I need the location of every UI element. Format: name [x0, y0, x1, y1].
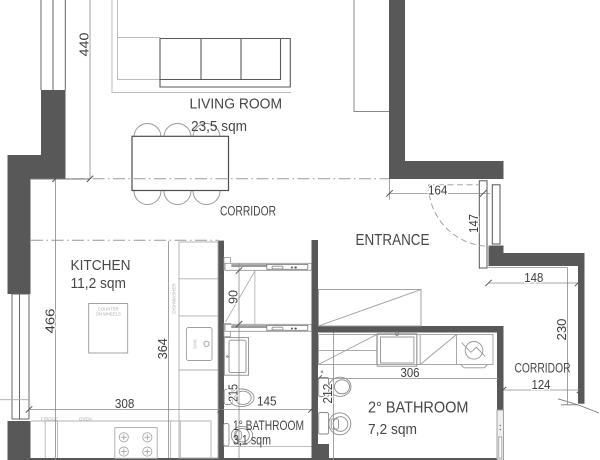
svg-text:145: 145 — [257, 393, 277, 408]
svg-text:ENTRANCE: ENTRANCE — [356, 232, 430, 249]
svg-text:23,5 sqm: 23,5 sqm — [191, 118, 247, 135]
svg-text:3,1 sqm: 3,1 sqm — [233, 433, 271, 448]
svg-text:CORRIDOR: CORRIDOR — [515, 360, 571, 375]
svg-text:148: 148 — [524, 270, 543, 285]
svg-text:KITCHEN: KITCHEN — [71, 258, 131, 274]
svg-text:147: 147 — [466, 214, 481, 233]
svg-text:DISHWASHER: DISHWASHER — [172, 283, 177, 314]
svg-text:2° BATHROOM: 2° BATHROOM — [368, 399, 469, 416]
svg-text:212: 212 — [320, 384, 335, 404]
svg-text:230: 230 — [554, 319, 569, 341]
svg-text:308: 308 — [115, 396, 135, 411]
svg-text:OVEN: OVEN — [79, 416, 92, 421]
svg-text:306: 306 — [401, 365, 420, 380]
svg-text:11,2 sqm: 11,2 sqm — [71, 275, 127, 292]
svg-text:SINK: SINK — [193, 339, 198, 349]
svg-text:1° BATHROOM: 1° BATHROOM — [233, 418, 304, 433]
svg-text:124: 124 — [532, 377, 551, 392]
svg-text:164: 164 — [428, 183, 448, 198]
svg-text:215: 215 — [226, 384, 241, 402]
svg-text:466: 466 — [42, 309, 57, 334]
svg-text:364: 364 — [155, 338, 170, 359]
svg-text:7,2 sqm: 7,2 sqm — [368, 421, 417, 438]
svg-text:CORRIDOR: CORRIDOR — [220, 204, 276, 219]
svg-text:ON WHEELS: ON WHEELS — [96, 312, 121, 317]
svg-text:90: 90 — [226, 290, 241, 304]
svg-text:LIVING ROOM: LIVING ROOM — [190, 96, 283, 113]
svg-text:440: 440 — [76, 33, 91, 57]
